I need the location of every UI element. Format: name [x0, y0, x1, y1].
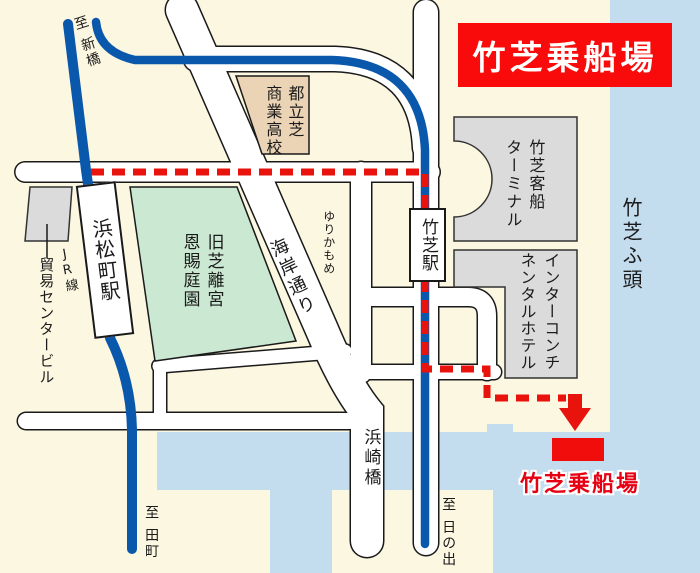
station-hamamatsucho-label: 浜松町駅: [90, 217, 120, 303]
direction-to-hinode: 至 日の出: [440, 497, 456, 567]
takeshiba-access-map: 竹芝乗船場 浜松町駅 竹芝駅 至 新橋 JR線 貿易センタービル 都立芝 商業高…: [0, 0, 700, 573]
title-banner-text: 竹芝乗船場: [473, 31, 658, 79]
school-label-col1: 都立芝: [285, 85, 303, 139]
water-notch: [487, 424, 513, 434]
park-label-col1: 旧芝離宮: [203, 233, 223, 309]
hotel-label-col1: インターコンチ: [541, 252, 559, 371]
yurikamome-label: ゆりかもめ: [321, 210, 335, 275]
title-banner: 竹芝乗船場: [458, 23, 672, 87]
hotel-label-col2: ネンタルホテル: [517, 252, 535, 371]
boarding-pier-marker: [552, 438, 604, 461]
trade-center-label: 貿易センタービル: [37, 257, 54, 385]
station-takeshiba: 竹芝駅: [409, 208, 446, 282]
destination-label: 竹芝乗船場: [508, 466, 652, 498]
direction-to-tamachi: 至 田町: [143, 505, 159, 559]
terminal-label-col2: ターミナル: [503, 139, 521, 229]
school-label-col2: 商業高校: [263, 85, 281, 157]
terminal-label-col1: 竹芝客船: [526, 139, 544, 211]
water-canal-south: [270, 490, 332, 573]
station-takeshiba-label: 竹芝駅: [419, 218, 436, 272]
water-harbor-south: [493, 490, 610, 573]
takeshiba-pier-area-label: 竹芝ふ頭: [619, 197, 642, 293]
park-label-col2: 恩賜庭園: [179, 233, 199, 309]
building-trade-center: [25, 187, 72, 241]
hamasaki-bridge-label: 浜崎橋: [360, 428, 380, 488]
